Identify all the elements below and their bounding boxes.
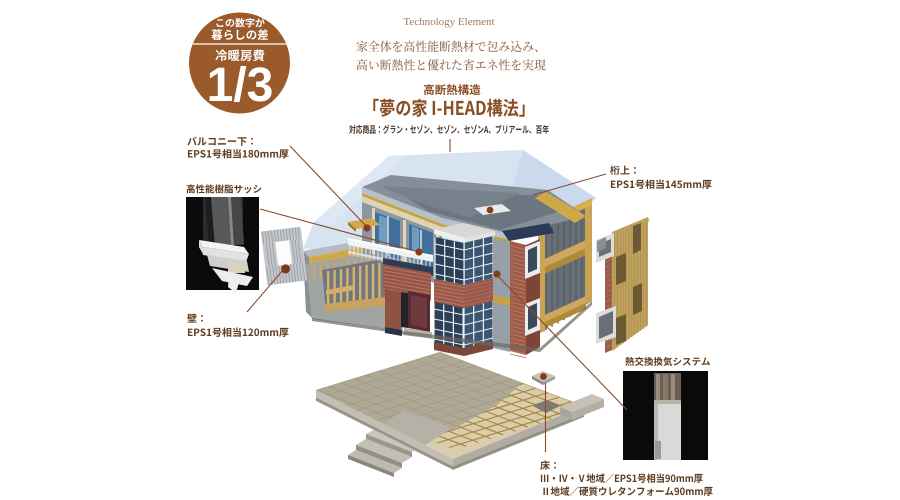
svg-text:Technology Element: Technology Element (403, 16, 494, 28)
svg-text:1/3: 1/3 (207, 59, 274, 112)
